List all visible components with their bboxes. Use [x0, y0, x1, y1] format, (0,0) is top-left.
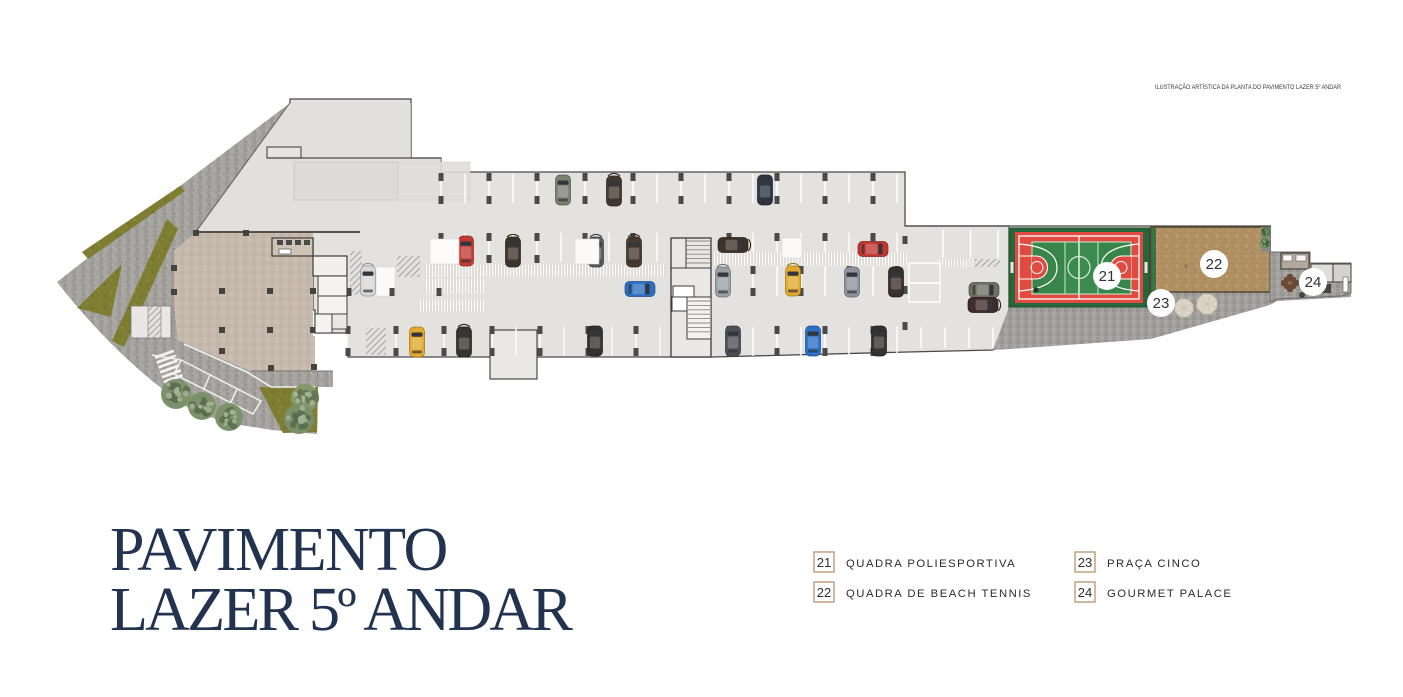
svg-text:PRAÇA CINCO: PRAÇA CINCO	[1107, 558, 1201, 570]
svg-text:24: 24	[1305, 274, 1322, 291]
svg-text:LAZER 5º ANDAR: LAZER 5º ANDAR	[110, 576, 574, 644]
svg-text:GOURMET PALACE: GOURMET PALACE	[1107, 588, 1232, 600]
svg-text:22: 22	[1206, 256, 1223, 273]
svg-text:QUADRA POLIESPORTIVA: QUADRA POLIESPORTIVA	[846, 558, 1016, 570]
svg-text:ILUSTRAÇÃO ARTÍSTICA DA PLANTA: ILUSTRAÇÃO ARTÍSTICA DA PLANTA DO PAVIME…	[1155, 82, 1341, 91]
svg-text:23: 23	[1153, 295, 1170, 312]
svg-text:22: 22	[817, 585, 831, 600]
svg-text:21: 21	[817, 555, 831, 570]
svg-text:PAVIMENTO: PAVIMENTO	[110, 516, 447, 584]
svg-text:QUADRA DE BEACH TENNIS: QUADRA DE BEACH TENNIS	[846, 588, 1032, 600]
svg-text:24: 24	[1078, 585, 1092, 600]
svg-text:21: 21	[1099, 268, 1116, 285]
svg-text:23: 23	[1078, 555, 1092, 570]
